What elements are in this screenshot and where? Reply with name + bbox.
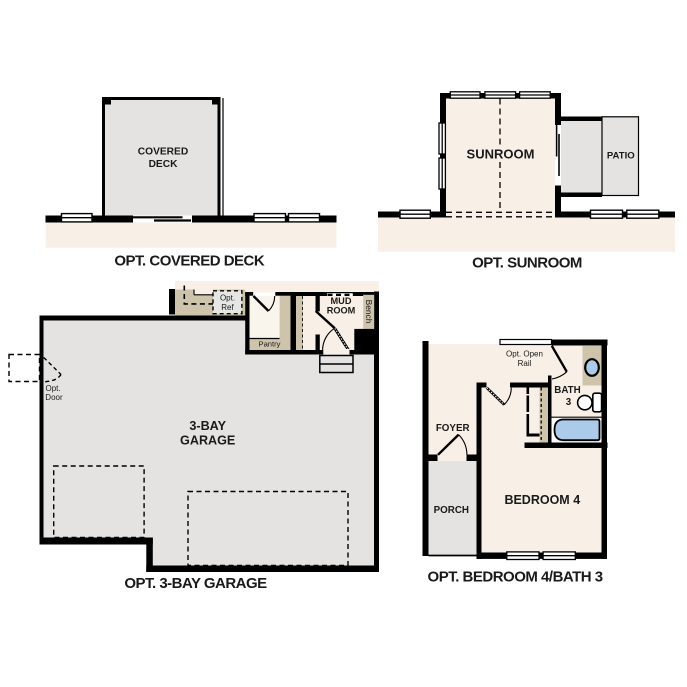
svg-text:Door: Door <box>45 393 63 402</box>
svg-text:OPT. COVERED DECK: OPT. COVERED DECK <box>114 252 265 269</box>
svg-text:GARAGE: GARAGE <box>180 434 235 448</box>
svg-text:Bench: Bench <box>364 300 374 324</box>
svg-text:3: 3 <box>566 397 572 408</box>
svg-text:OPT. 3-BAY GARAGE: OPT. 3-BAY GARAGE <box>124 575 267 592</box>
svg-text:Opt.: Opt. <box>220 293 235 302</box>
svg-text:PORCH: PORCH <box>434 505 469 516</box>
svg-text:Pantry: Pantry <box>259 340 281 349</box>
svg-text:ROOM: ROOM <box>327 306 356 316</box>
svg-text:MUD: MUD <box>331 296 352 306</box>
svg-text:BEDROOM 4: BEDROOM 4 <box>504 493 580 507</box>
svg-text:SUNROOM: SUNROOM <box>467 147 535 162</box>
svg-text:3-BAY: 3-BAY <box>189 419 226 433</box>
svg-text:Rail: Rail <box>518 359 532 368</box>
svg-text:COVERED: COVERED <box>138 146 188 157</box>
svg-text:OPT. BEDROOM 4/BATH 3: OPT. BEDROOM 4/BATH 3 <box>428 568 603 585</box>
svg-text:DECK: DECK <box>149 159 179 170</box>
svg-text:Ref: Ref <box>221 303 234 312</box>
svg-text:Opt.: Opt. <box>46 384 61 393</box>
svg-text:OPT. SUNROOM: OPT. SUNROOM <box>472 255 582 272</box>
svg-text:BATH: BATH <box>554 385 580 396</box>
svg-text:PATIO: PATIO <box>607 150 635 161</box>
svg-text:Opt. Open: Opt. Open <box>506 350 543 359</box>
svg-text:FOYER: FOYER <box>436 423 470 434</box>
